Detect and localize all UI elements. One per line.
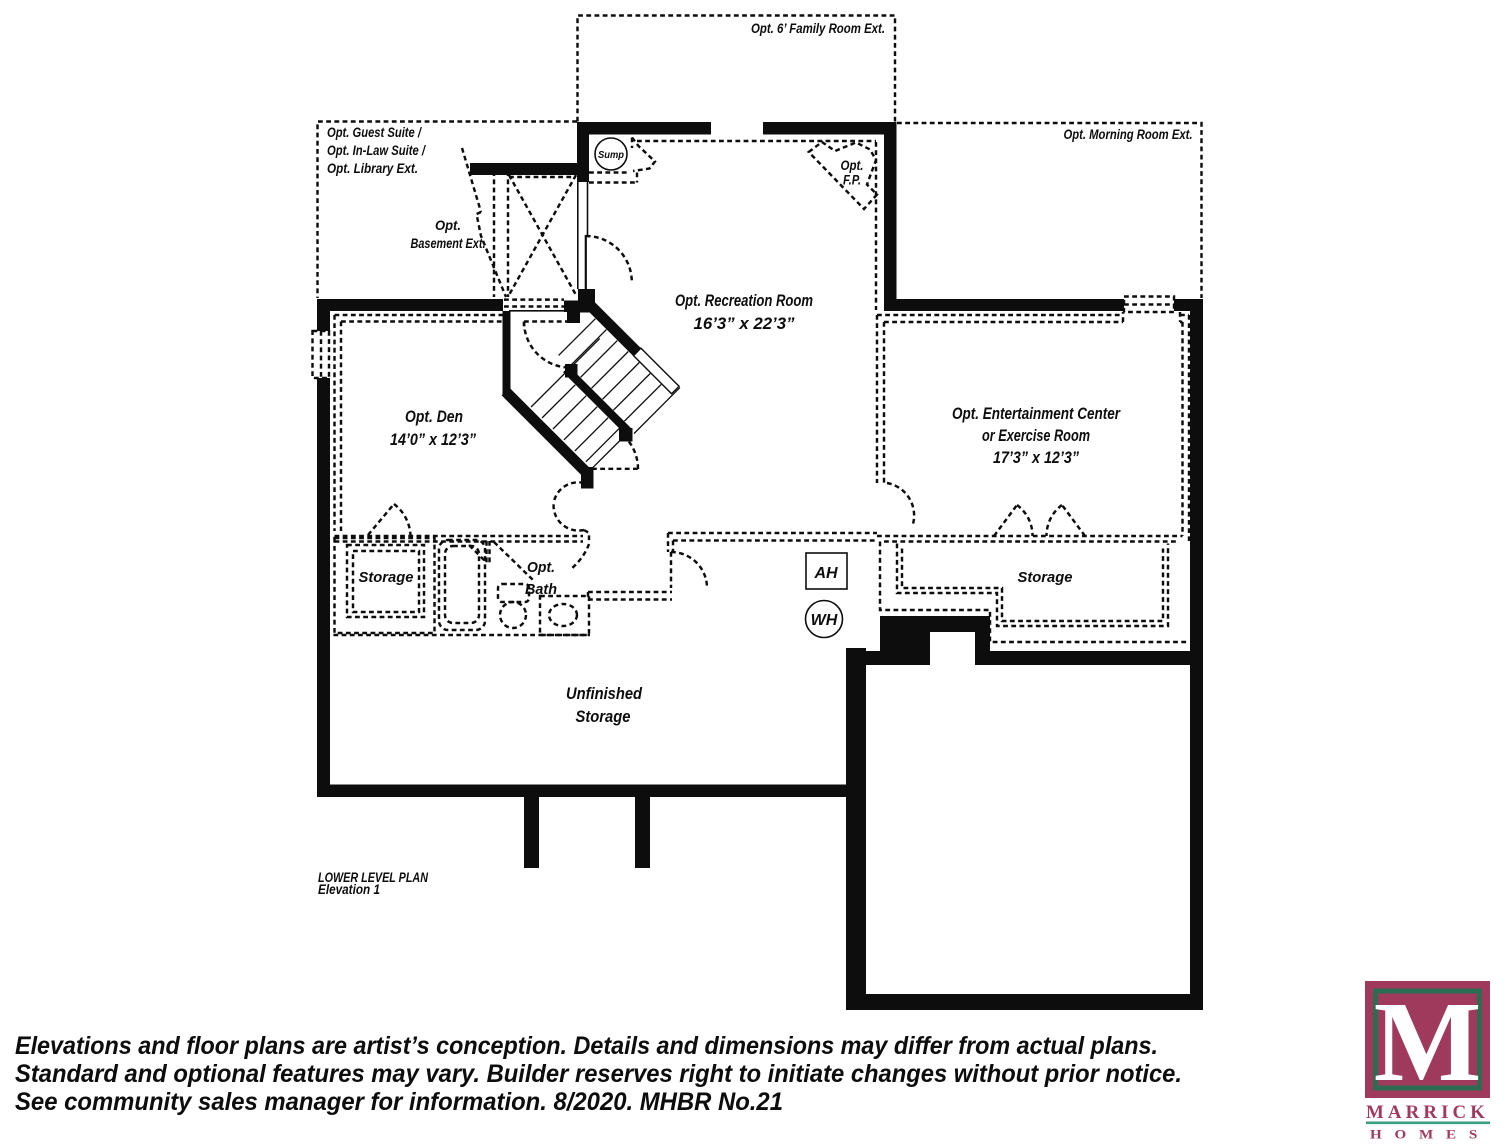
svg-text:Elevations and floor plans are: Elevations and floor plans are artist’s … <box>15 1032 1158 1060</box>
svg-text:F.P.: F.P. <box>843 173 861 188</box>
svg-text:M: M <box>1374 978 1482 1105</box>
svg-text:Opt. In-Law Suite /: Opt. In-Law Suite / <box>327 143 426 158</box>
svg-text:17’3” x 12’3”: 17’3” x 12’3” <box>993 449 1080 467</box>
svg-text:Opt. Entertainment Center: Opt. Entertainment Center <box>952 405 1121 423</box>
svg-text:Opt. Library Ext.: Opt. Library Ext. <box>327 161 418 176</box>
svg-text:Opt.: Opt. <box>841 158 864 173</box>
svg-text:Storage: Storage <box>576 708 631 726</box>
svg-text:Elevation 1: Elevation 1 <box>318 882 380 897</box>
svg-text:or Exercise Room: or Exercise Room <box>982 427 1090 445</box>
svg-text:WH: WH <box>811 612 838 629</box>
svg-text:Opt. Recreation Room: Opt. Recreation Room <box>675 292 813 310</box>
svg-text:Opt.: Opt. <box>527 559 555 576</box>
svg-text:Unfinished: Unfinished <box>566 685 643 703</box>
svg-text:Opt.: Opt. <box>435 218 461 233</box>
svg-text:Storage: Storage <box>1018 569 1073 586</box>
svg-text:MARRICK: MARRICK <box>1366 1103 1489 1123</box>
svg-text:Opt. 6’ Family Room Ext.: Opt. 6’ Family Room Ext. <box>751 21 885 36</box>
svg-text:Opt. Den: Opt. Den <box>405 408 463 426</box>
svg-text:HOMES: HOMES <box>1370 1127 1490 1142</box>
svg-text:See community sales manager fo: See community sales manager for informat… <box>15 1088 783 1116</box>
svg-text:AH: AH <box>813 565 838 582</box>
svg-text:Sump: Sump <box>598 149 625 161</box>
svg-text:16’3” x 22’3”: 16’3” x 22’3” <box>694 315 796 333</box>
svg-text:Basement Ext.: Basement Ext. <box>411 236 486 251</box>
svg-text:Storage: Storage <box>359 569 414 586</box>
svg-text:Standard and optional features: Standard and optional features may vary.… <box>15 1060 1182 1088</box>
svg-text:Opt. Morning Room Ext.: Opt. Morning Room Ext. <box>1064 127 1193 142</box>
svg-text:14’0” x 12’3”: 14’0” x 12’3” <box>390 431 477 449</box>
svg-text:Opt. Guest Suite /: Opt. Guest Suite / <box>327 125 422 140</box>
